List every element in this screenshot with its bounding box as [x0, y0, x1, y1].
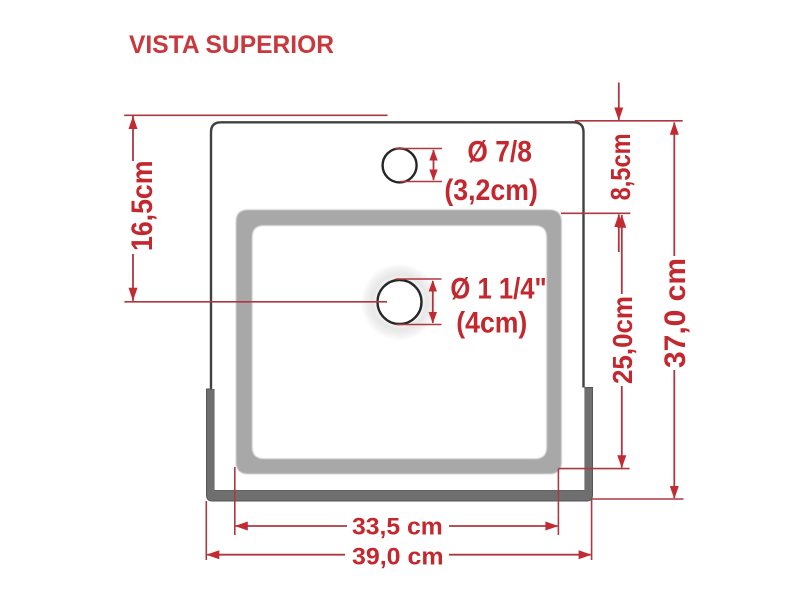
svg-text:8,5cm: 8,5cm: [605, 133, 636, 200]
svg-text:33,5 cm: 33,5 cm: [352, 514, 443, 541]
svg-text:VISTA SUPERIOR: VISTA SUPERIOR: [129, 31, 334, 59]
svg-text:(3,2cm): (3,2cm): [444, 174, 538, 207]
svg-text:39,0 cm: 39,0 cm: [352, 543, 444, 570]
svg-text:37,0 cm: 37,0 cm: [659, 258, 692, 368]
svg-text:16,5cm: 16,5cm: [126, 161, 159, 252]
svg-text:Ø 1 1/4": Ø 1 1/4": [450, 272, 546, 305]
svg-text:25,0cm: 25,0cm: [607, 296, 638, 384]
svg-text:(4cm): (4cm): [456, 306, 527, 339]
svg-text:Ø 7/8: Ø 7/8: [467, 135, 532, 168]
